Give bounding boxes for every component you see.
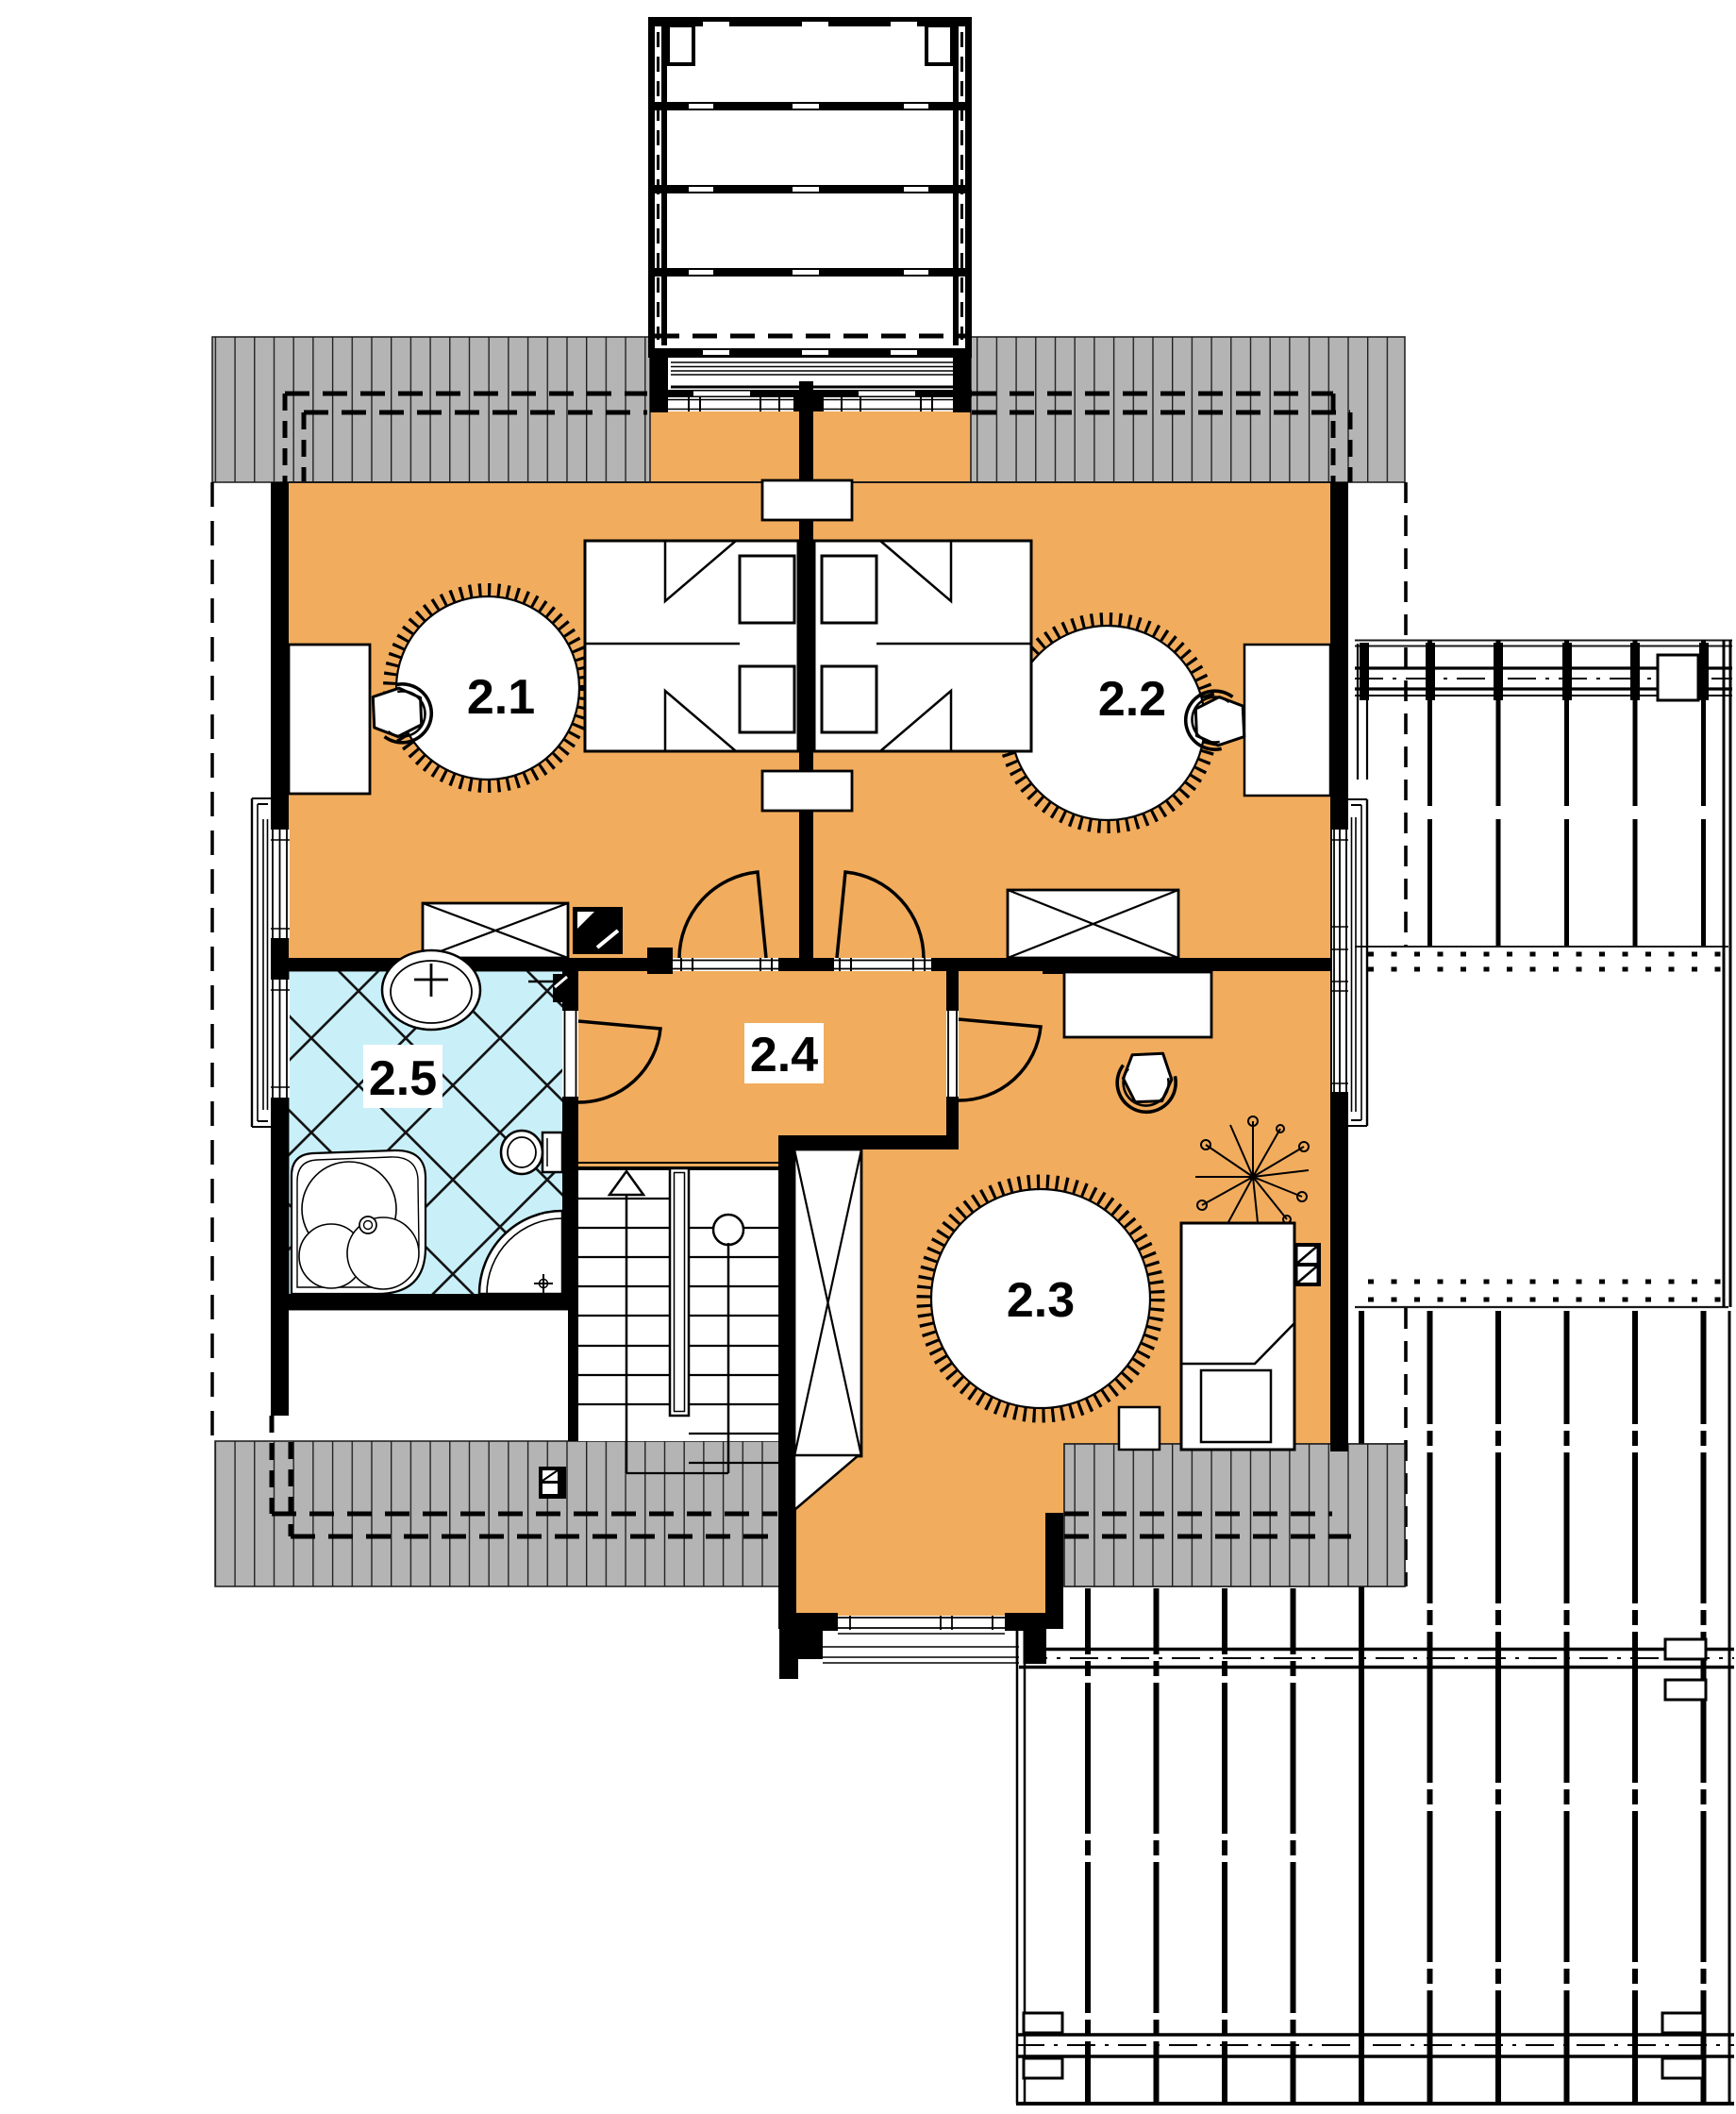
svg-text:2.4: 2.4 bbox=[750, 1028, 818, 1082]
svg-text:2.3: 2.3 bbox=[1007, 1273, 1075, 1328]
svg-text:2.2: 2.2 bbox=[1098, 672, 1166, 727]
svg-text:2.1: 2.1 bbox=[467, 670, 535, 725]
svg-text:2.5: 2.5 bbox=[369, 1051, 437, 1106]
